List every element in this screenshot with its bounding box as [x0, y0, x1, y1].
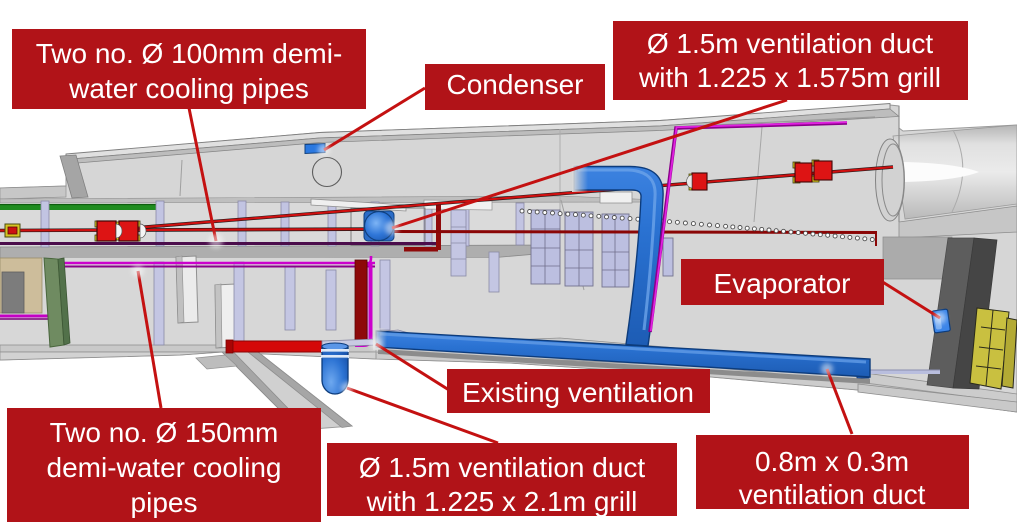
svg-text:Two no. Ø 150mm: Two no. Ø 150mm	[50, 417, 279, 448]
svg-text:Ø 1.5m ventilation duct: Ø 1.5m ventilation duct	[359, 452, 646, 483]
svg-text:with 1.225 x 2.1m grill: with 1.225 x 2.1m grill	[366, 486, 638, 517]
svg-text:with 1.225 x 1.575m grill: with 1.225 x 1.575m grill	[638, 62, 941, 93]
svg-text:Ø 1.5m ventilation duct: Ø 1.5m ventilation duct	[647, 28, 934, 59]
svg-text:water cooling pipes: water cooling pipes	[68, 73, 309, 104]
svg-text:Evaporator: Evaporator	[714, 268, 851, 299]
svg-text:Existing ventilation: Existing ventilation	[462, 377, 694, 408]
svg-text:ventilation duct: ventilation duct	[739, 479, 926, 510]
svg-text:Condenser: Condenser	[447, 69, 584, 100]
svg-text:pipes: pipes	[131, 487, 198, 518]
svg-text:Two no. Ø 100mm demi-: Two no. Ø 100mm demi-	[36, 38, 343, 69]
svg-text:demi-water cooling: demi-water cooling	[47, 452, 282, 483]
svg-text:0.8m x 0.3m: 0.8m x 0.3m	[755, 446, 909, 477]
